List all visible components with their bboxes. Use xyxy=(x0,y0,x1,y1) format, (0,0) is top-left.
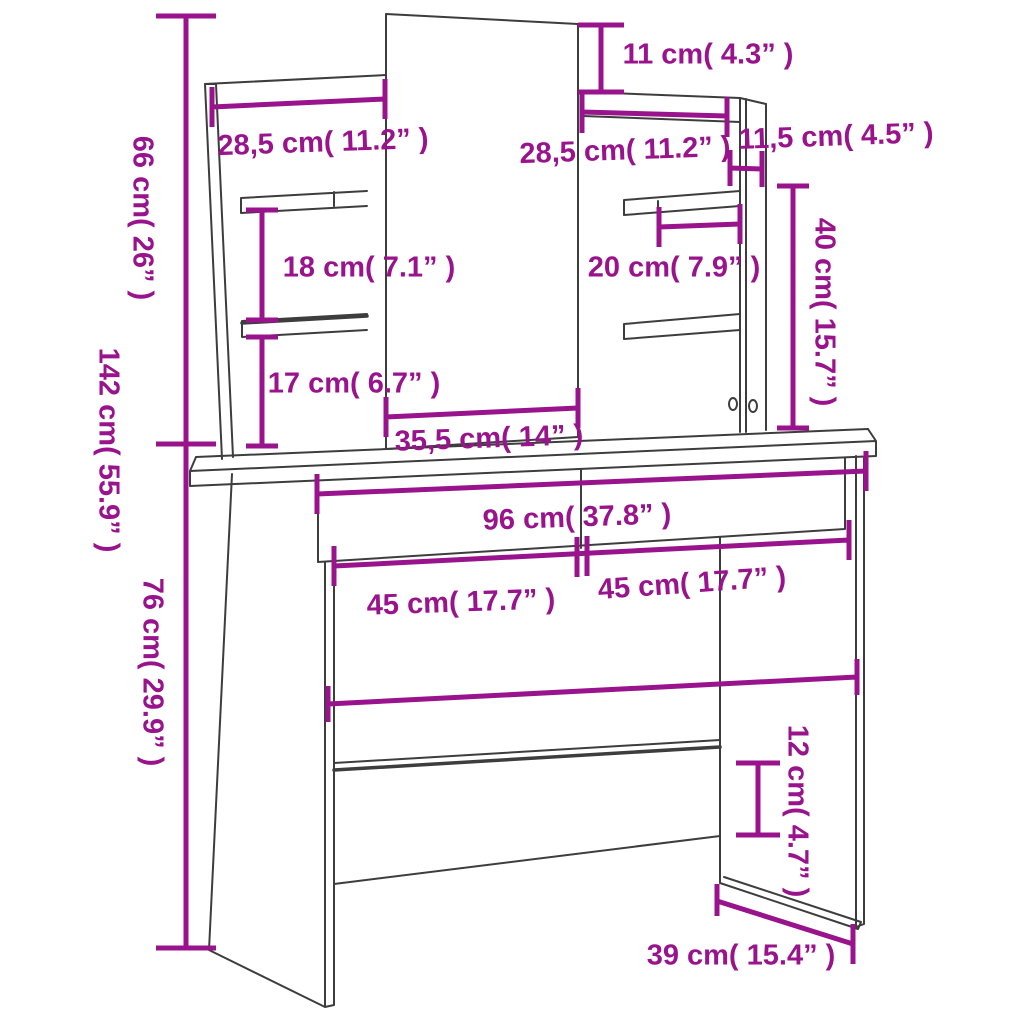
screw-hole-right xyxy=(749,400,757,412)
screw-hole-left xyxy=(729,398,737,410)
dim-label-right-shelf-width: 28,5 cm( 11.2” ) xyxy=(519,133,731,169)
dim-label-table-height: 76 cm( 29.9” ) xyxy=(138,578,167,767)
left-side-panel xyxy=(209,474,334,1007)
right-shelf-upper xyxy=(624,191,740,215)
dim-label-table-width: 96 cm( 37.8” ) xyxy=(482,500,672,536)
dim-label-mirror-top-offset: 11 cm( 4.3” ) xyxy=(623,41,794,70)
dim-label-left-shelf-width: 28,5 cm( 11.2” ) xyxy=(217,125,429,161)
dim-label-left-section-width: 45 cm( 17.7” ) xyxy=(366,585,556,621)
stretcher-board xyxy=(334,740,720,884)
dim-label-shelf-to-tabletop: 17 cm( 6.7” ) xyxy=(268,370,440,399)
dim-label-mirror-width: 35,5 cm( 14” ) xyxy=(394,421,584,457)
dim-line-height-142-66-76 xyxy=(156,16,216,948)
dim-line-stretcher-height xyxy=(736,763,780,835)
dim-label-right-tower-height: 40 cm( 15.7” ) xyxy=(810,218,839,407)
dim-label-stretcher-height: 12 cm( 4.7” ) xyxy=(783,725,812,897)
dim-line-left-shelf-width xyxy=(212,79,385,127)
dim-label-table-depth: 39 cm( 15.4” ) xyxy=(647,942,836,971)
dim-line-left-shelf-gap xyxy=(246,210,278,320)
dim-label-right-shelf-gap: 20 cm( 7.9” ) xyxy=(588,254,760,283)
dim-label-left-shelf-gap: 18 cm( 7.1” ) xyxy=(283,254,455,283)
dim-line-right-tower-height xyxy=(777,186,809,428)
dim-label-total-height: 142 cm( 55.9” ) xyxy=(94,348,123,553)
dim-line-right-shelf-width xyxy=(582,93,727,137)
dim-line-unlabeled-inner-width xyxy=(328,659,857,722)
dim-label-side-panel-depth: 11,5 cm( 4.5” ) xyxy=(738,119,934,155)
dim-label-upper-section-height: 66 cm( 26” ) xyxy=(128,136,157,300)
dimension-diagram: 11 cm( 4.3” ) 28,5 cm( 11.2” ) 28,5 cm( … xyxy=(0,0,1024,1024)
right-top-slab xyxy=(583,92,766,122)
right-shelf-lower xyxy=(624,314,740,339)
dim-line-mirror-top-offset xyxy=(578,25,624,92)
stretcher-top-edge xyxy=(334,747,720,770)
